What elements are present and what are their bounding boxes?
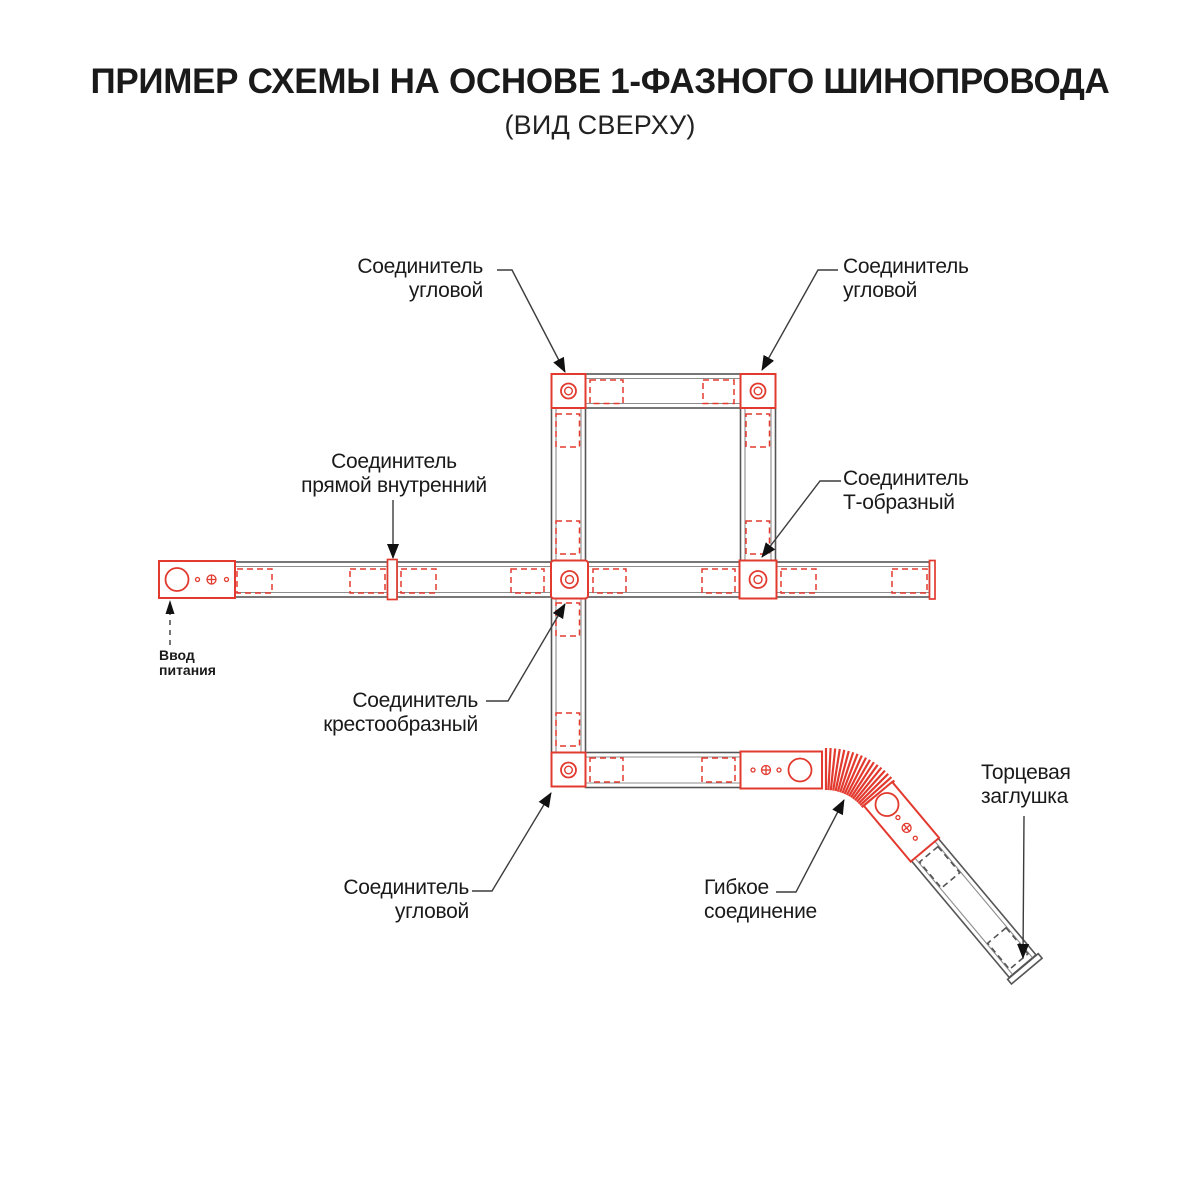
leader-corner-top-left: [497, 270, 565, 372]
corner-connector-top-left: [552, 374, 586, 408]
track-segment-main-4: [777, 562, 930, 597]
label-end-cap: Торцевая заглушка: [981, 761, 1071, 809]
leader-end-cap: [1023, 816, 1024, 958]
leader-corner-bottom: [472, 793, 551, 891]
busbar-diagram: [0, 0, 1200, 1200]
label-straight-internal-connector: Соединитель прямой внутренний: [301, 450, 487, 498]
power-feed-unit: [159, 561, 235, 598]
track-segment-main-2: [397, 562, 551, 597]
straight-internal-connector: [388, 560, 398, 600]
corner-connector-top-right: [741, 374, 776, 408]
leader-corner-top-right: [762, 270, 838, 370]
track-segment-main-3: [588, 562, 740, 597]
track-segment-main-1: [235, 562, 388, 597]
page: { "title": "ПРИМЕР СХЕМЫ НА ОСНОВЕ 1-ФАЗ…: [0, 0, 1200, 1200]
power-input-arrowhead: [166, 600, 175, 614]
label-flexible-connection: Гибкое соединение: [704, 876, 817, 924]
corner-connector-bottom: [552, 753, 586, 787]
t-connector: [740, 561, 777, 599]
track-segment-diagonal: [910, 837, 1043, 984]
flexible-connector: [741, 748, 940, 862]
label-corner-connector-top-left: Соединитель угловой: [357, 255, 483, 303]
label-corner-connector-bottom: Соединитель угловой: [343, 876, 469, 924]
label-cross-connector: Соединитель крестообразный: [323, 689, 478, 737]
label-corner-connector-top-right: Соединитель угловой: [843, 255, 969, 303]
label-t-connector: Соединитель Т-образный: [843, 467, 969, 515]
cross-connector: [551, 561, 588, 599]
track-end-cap-right: [930, 561, 936, 600]
label-power-input: Ввод питания: [159, 648, 216, 678]
